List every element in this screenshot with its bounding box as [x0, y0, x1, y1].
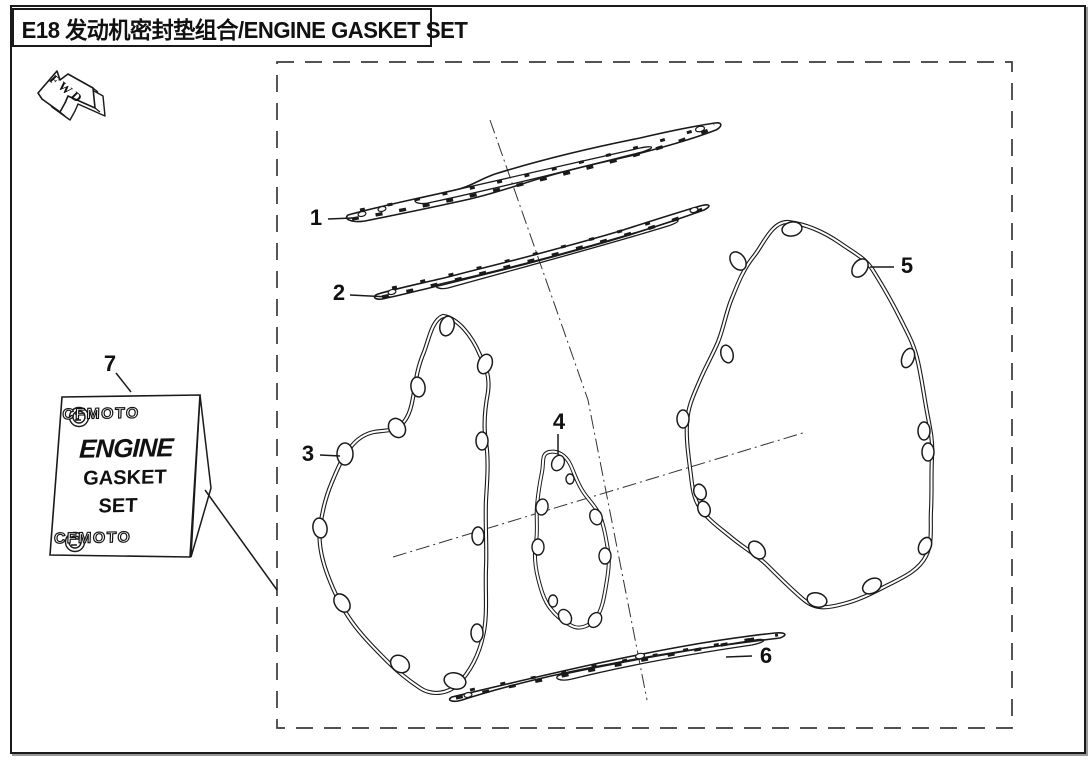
parts-diagram: [0, 0, 1090, 760]
part-5-gasket-drawing: [677, 220, 934, 609]
leader-line-3: [320, 455, 340, 456]
leader-line-1: [328, 218, 352, 219]
callout-5: 5: [901, 255, 913, 277]
callout-7: 7: [104, 353, 116, 375]
part-1-gasket-drawing: [347, 123, 721, 222]
kit-dashed-boundary: [277, 62, 1012, 728]
part-6-gasket-drawing: [450, 633, 785, 701]
label-box-pointer-line: [205, 490, 277, 590]
callout-1: 1: [310, 207, 322, 229]
part-4-gasket-drawing: [532, 452, 611, 630]
parts-catalog-page: { "page": { "title": "E18 发动机密封垫组合/ENGIN…: [0, 0, 1090, 760]
callout-2: 2: [333, 282, 345, 304]
leader-line-7: [116, 373, 131, 392]
label-box-content: CFMOTO ENGINE GASKET SET CFMOTO: [47, 394, 203, 559]
part-3-gasket-drawing: [311, 315, 495, 693]
callout-3: 3: [302, 443, 314, 465]
callout-4: 4: [553, 411, 565, 433]
centerline-horizontal: [393, 432, 806, 557]
product-name-line2: GASKET: [50, 466, 201, 492]
leader-line-6: [726, 656, 752, 657]
product-name-line3: SET: [43, 494, 194, 520]
leader-lines: [116, 218, 894, 657]
brand-name-bottom: CFMOTO: [54, 529, 132, 547]
part-2-gasket-drawing: [375, 205, 709, 299]
product-name-line1: ENGINE: [50, 432, 201, 466]
callout-6: 6: [760, 645, 772, 667]
brand-name-top: CFMOTO: [62, 405, 140, 423]
